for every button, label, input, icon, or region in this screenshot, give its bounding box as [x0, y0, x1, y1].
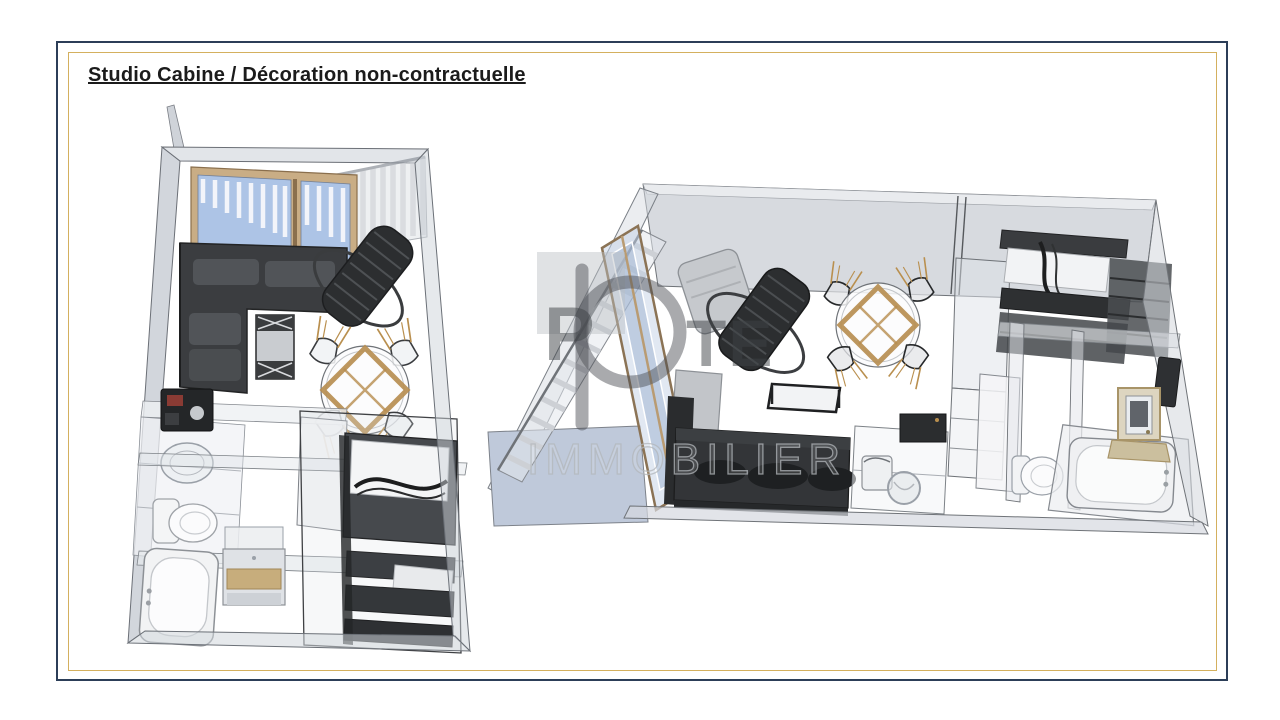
kitchen-right-plan	[851, 414, 948, 514]
coffee-machine	[161, 389, 213, 431]
bunk-cabin	[300, 411, 461, 653]
appliance-box	[900, 414, 946, 442]
coffee-table	[256, 315, 294, 379]
coffee-table-right-plan	[768, 384, 840, 412]
round-basin	[888, 472, 920, 504]
vanity	[223, 527, 285, 605]
bunk-bed-lower	[344, 551, 455, 647]
floor-plan-right	[480, 170, 1220, 540]
vanity-right-plan	[1108, 388, 1170, 462]
page-title: Studio Cabine / Décoration non-contractu…	[88, 64, 526, 87]
floor-plan-left	[95, 95, 485, 675]
